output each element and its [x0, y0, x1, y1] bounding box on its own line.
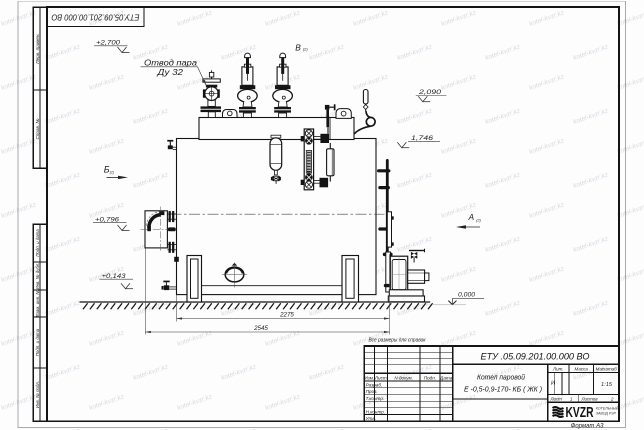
svg-text:2545: 2545 [253, 325, 268, 332]
svg-text:Н.контр.: Н.контр. [366, 409, 385, 414]
svg-text:(2): (2) [303, 47, 309, 52]
svg-text:2,090: 2,090 [418, 89, 442, 96]
svg-text:Изм.: Изм. [364, 375, 374, 380]
svg-text:Подп. и дата: Подп. и дата [35, 229, 40, 257]
svg-text:Формат А3: Формат А3 [571, 424, 604, 430]
svg-text:(2): (2) [476, 217, 482, 222]
svg-text:Справ. №: Справ. № [35, 119, 40, 140]
svg-text:Т.контр.: Т.контр. [366, 396, 385, 401]
svg-text:Лист: Лист [550, 397, 563, 402]
svg-text:+2,700: +2,700 [96, 39, 121, 46]
svg-text:+0,143: +0,143 [102, 273, 127, 280]
svg-text:Все размеры для справок: Все размеры для справок [369, 337, 426, 343]
svg-text:KVZR: KVZR [566, 405, 594, 421]
svg-text:Подп.: Подп. [424, 375, 436, 380]
svg-text:Котел паровой: Котел паровой [477, 374, 525, 382]
svg-text:ЗАВОД РЗР: ЗАВОД РЗР [596, 411, 617, 415]
svg-text:Лит.: Лит. [552, 366, 564, 371]
svg-text:Разраб.: Разраб. [366, 383, 383, 388]
svg-text:КОТЕЛЬНЫЙ: КОТЕЛЬНЫЙ [596, 407, 619, 411]
svg-text:Инв. № подл.: Инв. № подл. [35, 381, 40, 408]
svg-text:И: И [551, 381, 555, 387]
svg-text:ЕТУ.05.09.201.00.000 ВО: ЕТУ.05.09.201.00.000 ВО [51, 13, 140, 22]
svg-text:Масштаб: Масштаб [596, 366, 617, 371]
svg-text:2275: 2275 [279, 311, 294, 318]
svg-text:Инв. № дубл.: Инв. № дубл. [35, 262, 40, 289]
svg-text:Е -0,5-0,9-170- КБ ( ЖК ): Е -0,5-0,9-170- КБ ( ЖК ) [464, 387, 542, 394]
svg-text:Пров.: Пров. [366, 389, 378, 394]
svg-text:А: А [468, 212, 475, 222]
svg-text:Взам. инв. №: Взам. инв. № [35, 290, 40, 317]
svg-text:В: В [295, 42, 301, 52]
svg-text:0,000: 0,000 [458, 292, 476, 299]
svg-text:1:15: 1:15 [601, 382, 613, 388]
svg-text:Дата: Дата [439, 375, 453, 380]
svg-text:+0,796: +0,796 [95, 216, 120, 223]
svg-text:Листов: Листов [581, 397, 599, 402]
svg-text:N докум.: N докум. [394, 375, 413, 380]
svg-text:(2): (2) [110, 171, 114, 175]
svg-text:ЕТУ .05.09.201.00.000 ВО: ЕТУ .05.09.201.00.000 ВО [481, 352, 591, 363]
svg-text:Масса: Масса [575, 366, 589, 371]
svg-text:Утв.: Утв. [366, 416, 376, 421]
svg-text:Лист: Лист [374, 375, 387, 380]
svg-text:1,746: 1,746 [411, 135, 434, 142]
svg-text:Отвод пара: Отвод пара [144, 58, 197, 67]
svg-text:Ду 32: Ду 32 [156, 68, 183, 77]
svg-text:Перв. примен.: Перв. примен. [35, 33, 40, 64]
svg-text:2: 2 [610, 397, 614, 402]
svg-text:Подп. и дата: Подп. и дата [35, 328, 40, 356]
